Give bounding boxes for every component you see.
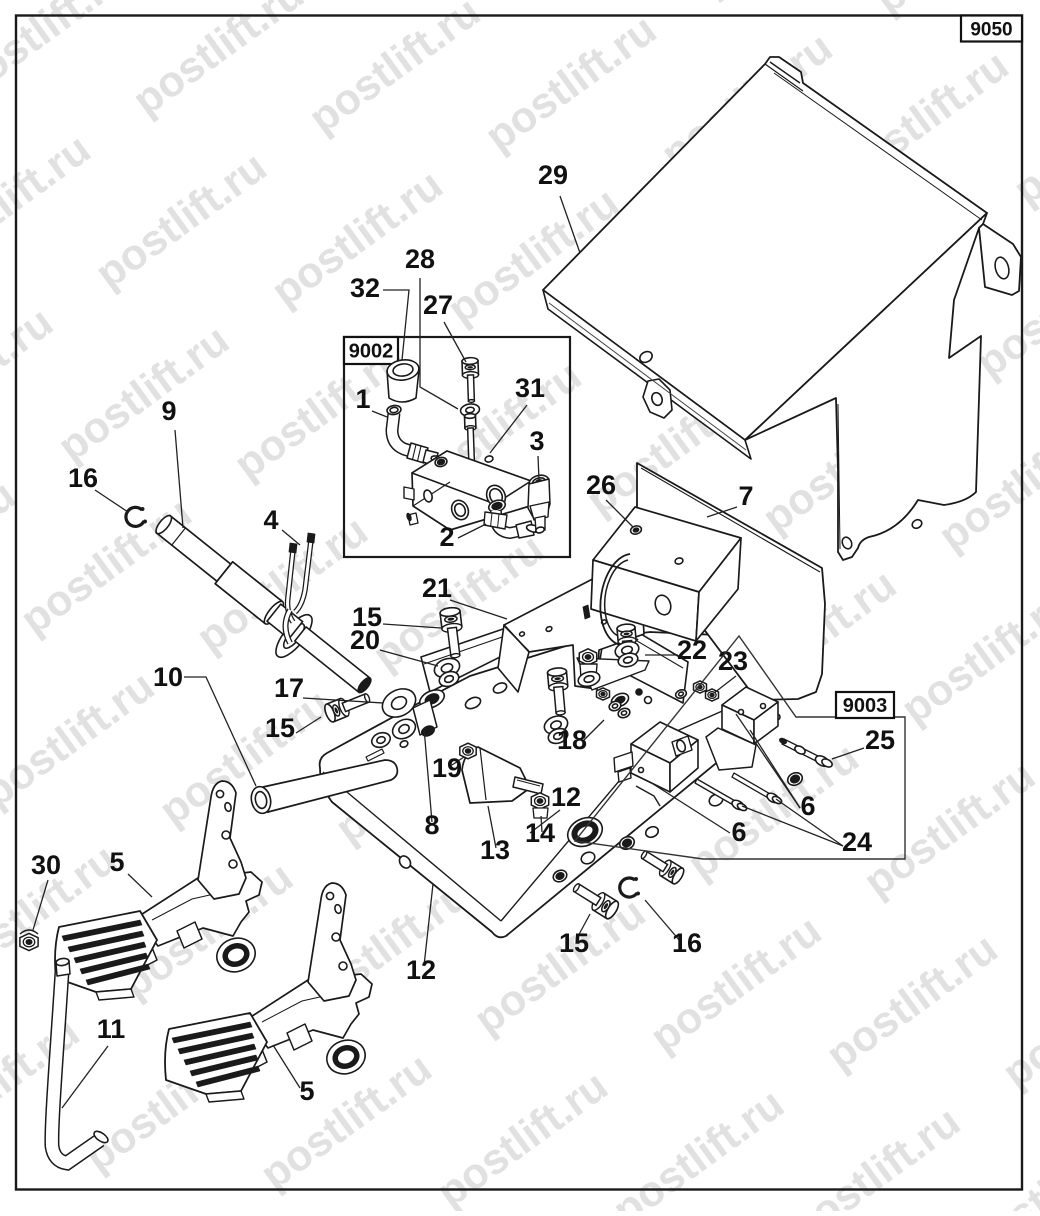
svg-text:5: 5 (109, 847, 124, 877)
svg-text:9002: 9002 (349, 341, 394, 363)
svg-text:11: 11 (97, 1014, 126, 1044)
svg-text:20: 20 (350, 625, 380, 655)
svg-text:24: 24 (842, 827, 872, 857)
svg-text:14: 14 (525, 818, 555, 848)
svg-text:4: 4 (263, 505, 278, 535)
svg-text:9050: 9050 (970, 19, 1012, 40)
svg-text:29: 29 (538, 160, 568, 190)
svg-text:21: 21 (422, 573, 452, 603)
svg-text:18: 18 (557, 725, 587, 755)
svg-text:7: 7 (738, 481, 753, 511)
svg-text:17: 17 (274, 673, 304, 703)
svg-text:9003: 9003 (843, 695, 888, 717)
svg-text:6: 6 (800, 791, 815, 821)
svg-text:16: 16 (68, 463, 98, 493)
svg-text:10: 10 (153, 662, 183, 692)
svg-text:27: 27 (423, 290, 453, 320)
svg-text:16: 16 (672, 928, 702, 958)
svg-text:13: 13 (480, 835, 510, 865)
svg-text:9: 9 (161, 396, 176, 426)
svg-text:8: 8 (424, 810, 439, 840)
svg-text:2: 2 (439, 522, 454, 552)
svg-text:23: 23 (718, 646, 748, 676)
svg-text:12: 12 (551, 782, 581, 812)
svg-text:5: 5 (299, 1076, 314, 1106)
svg-text:6: 6 (731, 817, 746, 847)
svg-text:32: 32 (350, 273, 380, 303)
svg-text:15: 15 (559, 928, 589, 958)
svg-text:26: 26 (586, 470, 616, 500)
svg-text:3: 3 (529, 426, 544, 456)
svg-text:15: 15 (265, 713, 295, 743)
svg-text:28: 28 (405, 244, 435, 274)
svg-text:25: 25 (865, 725, 895, 755)
svg-text:22: 22 (677, 635, 707, 665)
svg-text:30: 30 (31, 850, 61, 880)
svg-text:1: 1 (355, 384, 370, 414)
svg-text:31: 31 (515, 373, 545, 403)
svg-text:12: 12 (406, 955, 436, 985)
svg-text:19: 19 (432, 753, 462, 783)
